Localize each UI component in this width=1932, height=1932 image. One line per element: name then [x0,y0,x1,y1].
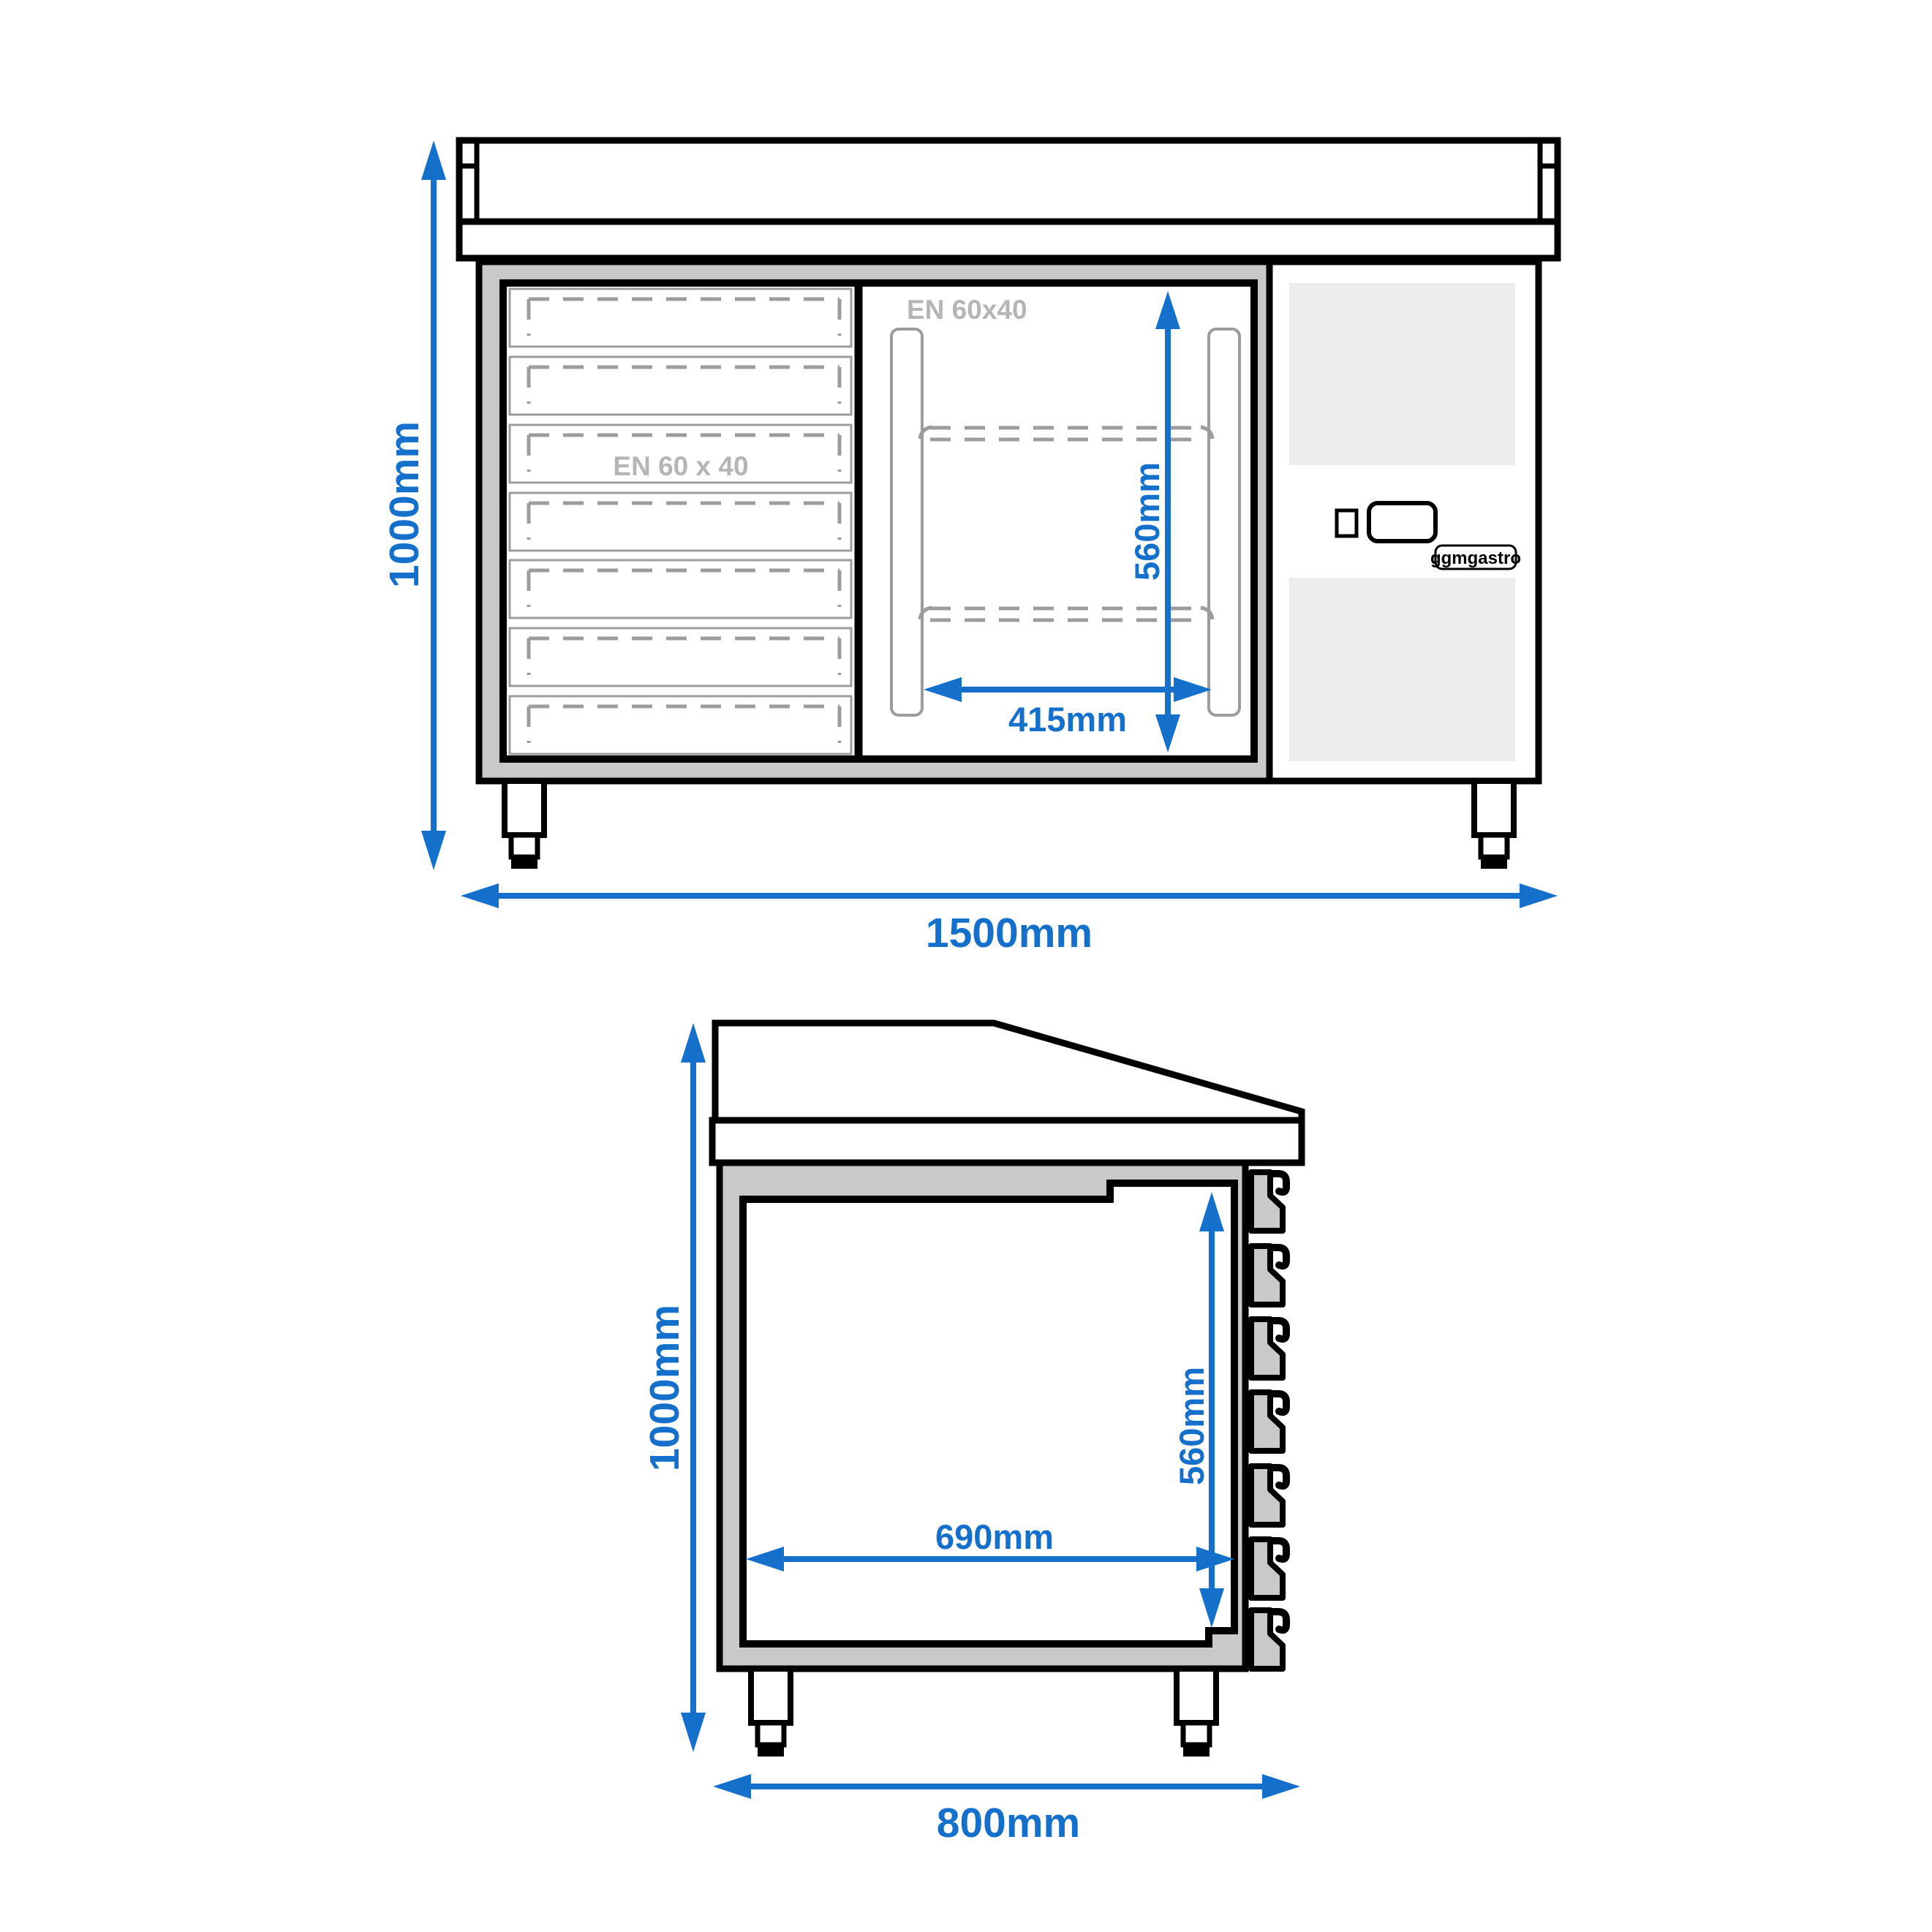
arrow-right-icon [1520,883,1558,908]
drawer-stack: EN 60 x 40 [510,289,851,754]
arrow-down-icon [421,831,446,870]
drawer-slot-6 [510,628,851,686]
thermostat-display-icon [1369,503,1435,541]
arrow-right-icon [1262,1774,1300,1799]
side-inner-depth-label: 690mm [935,1517,1054,1556]
rail-3 [1251,1319,1286,1378]
side-inner-height-label: 560mm [1172,1367,1211,1485]
side-backsplash [715,1023,1302,1120]
rail-5 [1251,1466,1286,1525]
side-inner-cavity [743,1183,1234,1644]
side-height-dimension: 1000mm [641,1023,706,1752]
vent-panel-top [1289,283,1515,465]
front-height-dimension: 1000mm [381,140,446,870]
brand-logo: ggmgastro [1430,546,1521,569]
rail-stack [1251,1172,1286,1669]
arrow-up-icon [681,1023,706,1063]
vent-panel-bottom [1289,578,1515,761]
drawer-slot-5 [510,560,851,618]
front-left-leg [505,781,544,869]
arrow-left-icon [713,1774,751,1799]
drawer-slot-7 [510,696,851,754]
front-backsplash [459,140,1558,222]
arrow-down-icon [681,1713,706,1752]
front-width-label: 1500mm [926,910,1093,956]
arrow-left-icon [461,883,499,908]
side-right-leg [1177,1669,1216,1756]
side-worktop [712,1120,1302,1163]
front-view: 1000mm ggmgastro [381,140,1558,956]
side-height-label: 1000mm [641,1305,688,1471]
machine-compartment: ggmgastro [1269,262,1539,781]
brand-logo-text: ggmgastro [1430,548,1521,568]
front-worktop [459,222,1558,258]
front-right-leg [1474,781,1514,869]
drawer-slot-2 [510,357,851,415]
rail-4 [1251,1392,1286,1451]
door-tray-size-label: EN 60x40 [907,295,1027,325]
front-height-label: 1000mm [381,421,428,588]
arrow-up-icon [421,140,446,180]
drawer-tray-size-label: EN 60 x 40 [613,451,748,481]
side-depth-dimension: 800mm [713,1774,1300,1846]
side-depth-label: 800mm [937,1800,1080,1846]
side-view: 1000mm 560mm [641,1023,1302,1846]
technical-drawing-page: 1000mm ggmgastro [0,0,1932,1932]
drawer-slot-1 [510,289,851,347]
rail-6 [1251,1539,1286,1598]
door-width-label: 415mm [1008,700,1127,739]
side-left-leg [751,1669,790,1756]
door-right-rail [1209,329,1239,715]
door-left-rail [891,329,922,715]
power-switch-icon [1337,510,1356,536]
drawer-slot-4 [510,493,851,551]
door-height-label: 560mm [1128,462,1166,581]
front-width-dimension: 1500mm [461,883,1558,956]
rail-7 [1251,1610,1286,1669]
backsplash-band [459,140,1558,222]
dimension-drawing: 1000mm ggmgastro [0,0,1932,1932]
rail-1 [1251,1172,1286,1231]
rail-2 [1251,1246,1286,1305]
